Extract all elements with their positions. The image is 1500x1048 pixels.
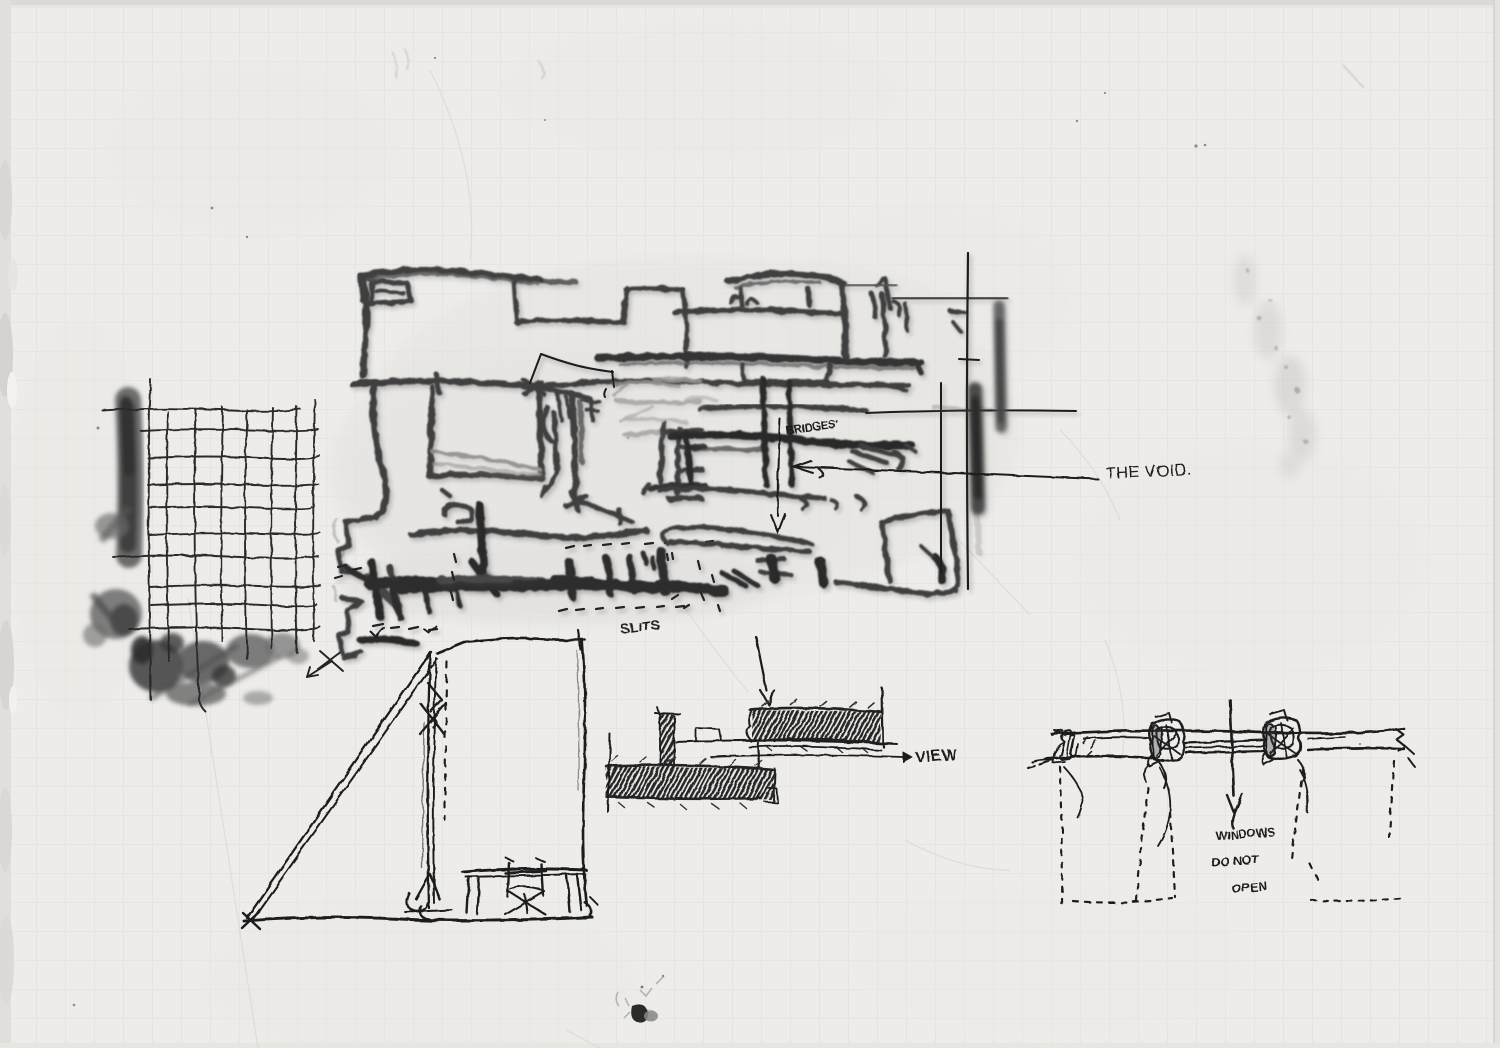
svg-text:OPEN: OPEN: [1231, 879, 1268, 895]
svg-text:VIEW: VIEW: [915, 746, 958, 767]
